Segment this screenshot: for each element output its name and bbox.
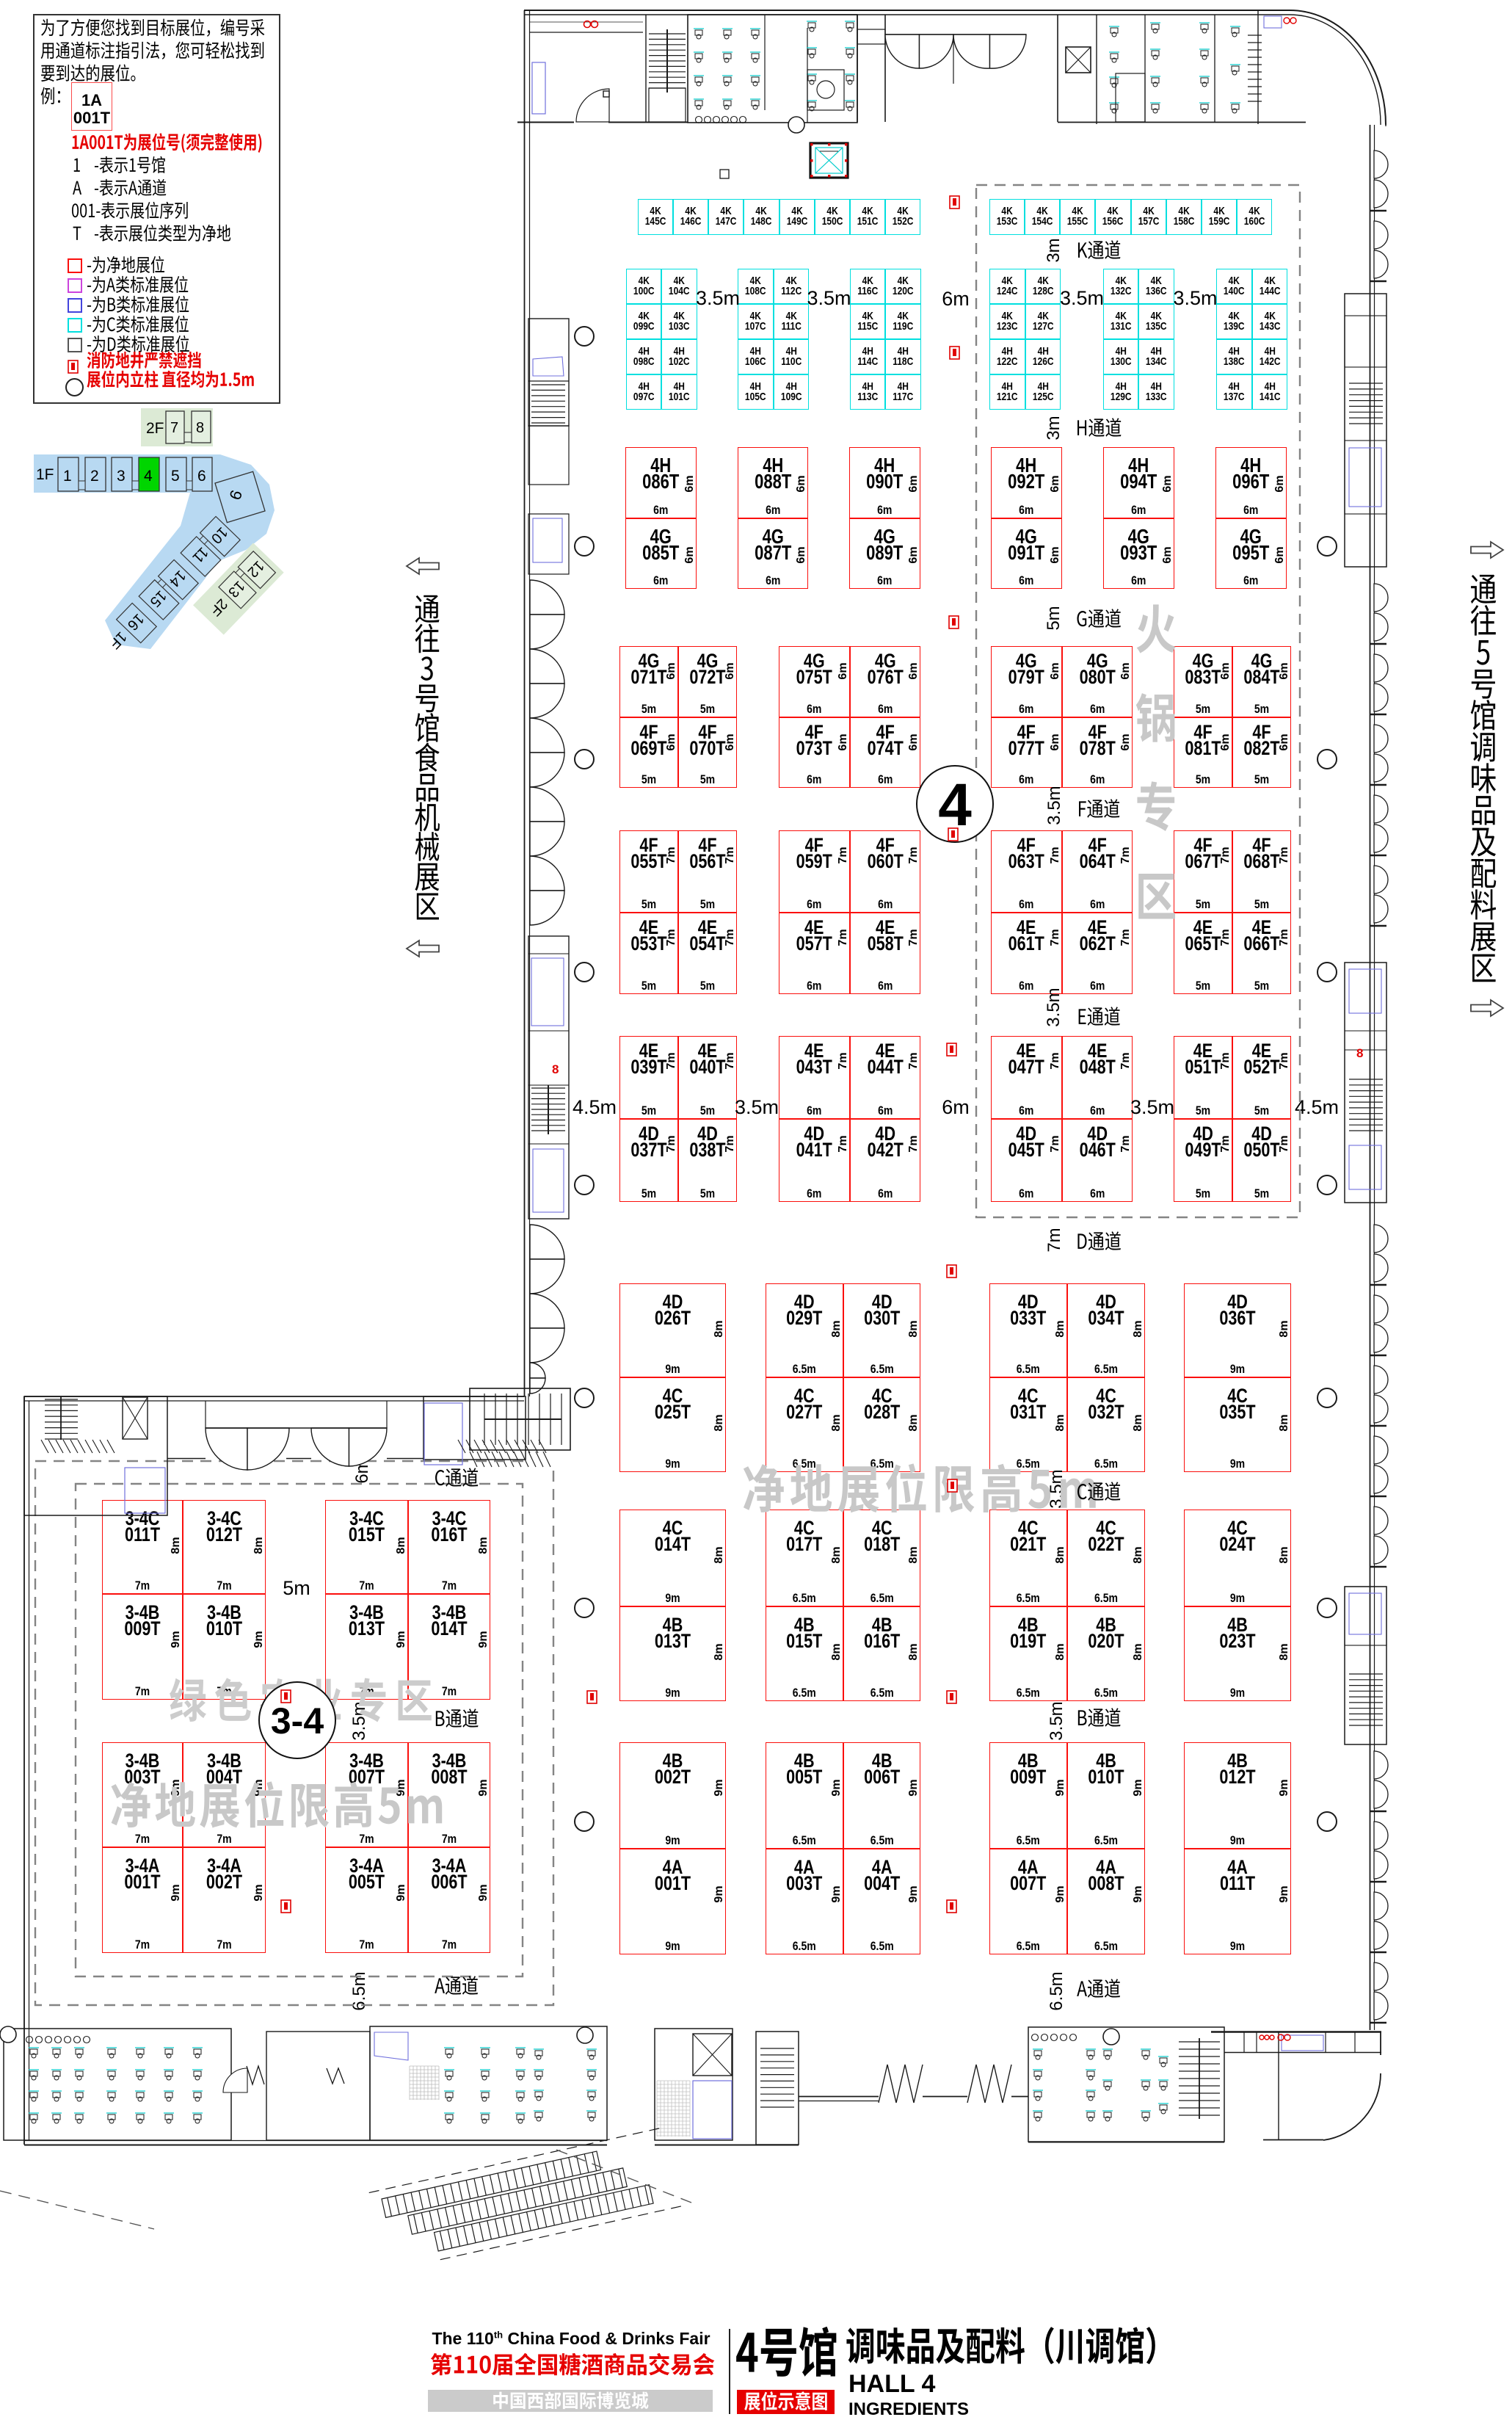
svg-text:7: 7	[170, 420, 178, 436]
svg-text:4: 4	[144, 468, 153, 485]
svg-text:8: 8	[552, 1062, 559, 1076]
svg-text:3-4: 3-4	[271, 1700, 324, 1742]
svg-text:6: 6	[197, 468, 206, 485]
svg-text:1F: 1F	[36, 466, 54, 483]
svg-text:8: 8	[196, 420, 204, 436]
svg-text:3: 3	[117, 468, 126, 485]
svg-text:5: 5	[171, 468, 180, 485]
svg-text:8: 8	[1356, 1046, 1363, 1060]
svg-text:2F: 2F	[146, 420, 164, 437]
svg-text:1: 1	[63, 468, 72, 485]
svg-text:2: 2	[90, 468, 99, 485]
